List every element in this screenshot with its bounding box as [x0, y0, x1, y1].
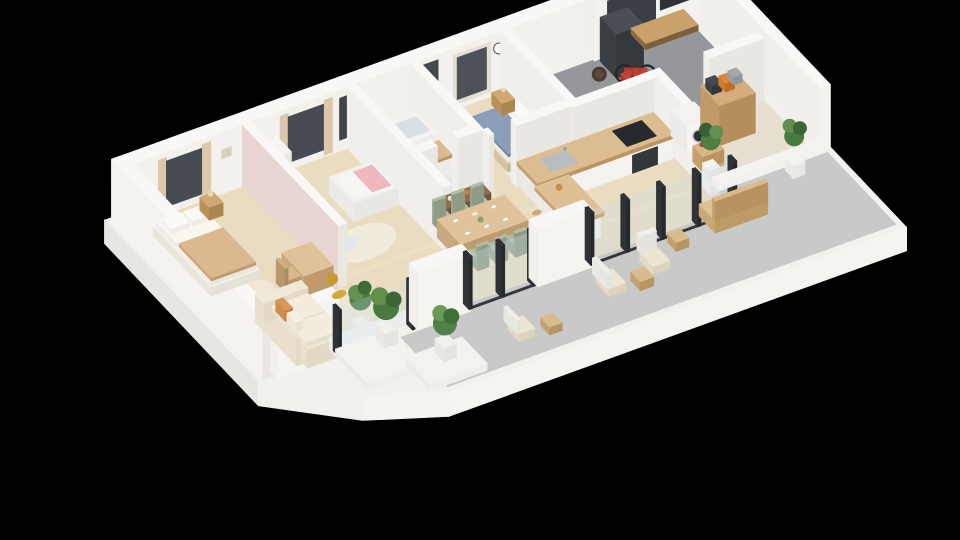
glass-post-b4	[692, 168, 701, 227]
base-plinth-diag2	[363, 393, 449, 421]
plant-terrace-1-leaves-3	[386, 292, 402, 308]
glass-post-b3	[656, 180, 665, 239]
floorplan-3d-render: 3D isometric apartment floor plan render…	[0, 0, 960, 540]
glass-post-a2	[496, 239, 505, 298]
bedroom1-lamp	[208, 191, 214, 197]
master-lamp	[501, 87, 506, 92]
window-bedroom1-curtain-right	[202, 141, 210, 199]
plant-living-leaves-3	[358, 281, 372, 295]
dining-centerpiece	[478, 217, 484, 223]
glass-post-b2	[621, 193, 630, 252]
plant-terrace-right-leaves-3	[793, 121, 807, 135]
plant-terrace-1-leaves-2	[371, 287, 389, 305]
kitchen-bowl	[556, 184, 563, 191]
kitchen-faucet	[563, 147, 567, 151]
plant-terrace-2-leaves-3	[443, 308, 459, 324]
floorplan-stage: 3D isometric apartment floor plan render…	[0, 0, 960, 540]
glass-post-b1	[585, 206, 594, 265]
glass-post-a1	[463, 250, 472, 309]
console-bowl-2	[464, 190, 469, 195]
window-nursery-curtain-right	[324, 97, 332, 155]
living-yellow-chair-back	[326, 273, 338, 285]
plant-laundry-leaves-3	[709, 125, 723, 139]
garage-tire	[593, 68, 605, 80]
